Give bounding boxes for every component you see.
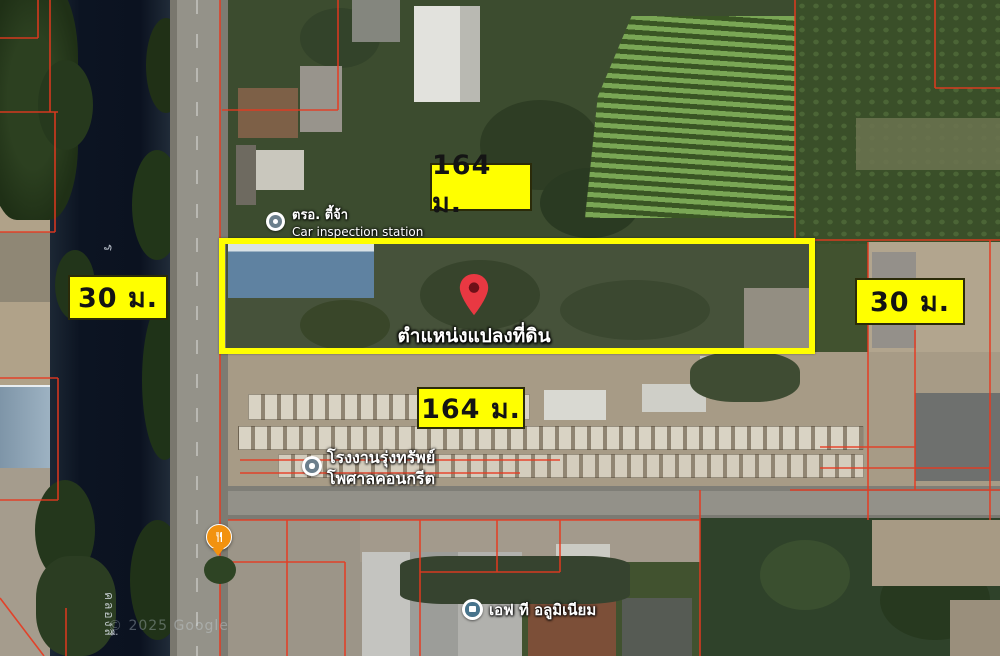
road-vertical-centerline: [196, 0, 198, 656]
bottom-right-tan-2: [950, 600, 1000, 656]
terrain-left-roof-2: [0, 232, 52, 302]
roof-dark-sliver: [236, 145, 256, 205]
roof-big-white: [414, 6, 480, 102]
yard-trees: [690, 352, 800, 402]
bottom-right-tree-blob-1: [760, 540, 850, 610]
bottom-left-ground: [228, 520, 378, 656]
satellite-map[interactable]: ตรอ. ตี้จ้า Car inspection station โรงงา…: [0, 0, 1000, 656]
factory-name-line2: โพศาลคอนกรีต: [327, 469, 435, 490]
dark-roof-bottom: [622, 598, 692, 656]
aluminium-label[interactable]: เอฟ ที อลูมิเนียม: [489, 601, 596, 621]
roof-gray-top: [352, 0, 400, 42]
pallet-row-2: [238, 426, 864, 450]
poi-dot-ring: [305, 459, 319, 473]
canal-trees-1: [38, 60, 93, 150]
dimension-label-left: 30 ม.: [68, 275, 168, 320]
aluminium-poi-icon[interactable]: [462, 599, 483, 620]
pin-caption: ตำแหน่งแปลงที่ดิน: [354, 321, 594, 351]
poi-dot-ring: [269, 215, 282, 228]
roof-gray-tall: [300, 66, 342, 132]
pin-hole: [469, 282, 480, 293]
factory-label[interactable]: โรงงานรุ่งทรัพย์ โพศาลคอนกรีต: [327, 448, 435, 490]
restaurant-pin[interactable]: [206, 524, 232, 550]
right-dark-shed: [915, 393, 1000, 481]
dimension-label-bottom: 164 ม.: [417, 387, 525, 429]
roof-rust: [238, 88, 298, 138]
dimension-label-top: 164 ม.: [430, 163, 532, 211]
location-pin-icon[interactable]: [453, 272, 495, 318]
restaurant-bush: [204, 556, 236, 584]
briefcase-icon: [465, 602, 479, 616]
car-inspection-poi-icon[interactable]: [266, 212, 285, 231]
pin-body: [460, 274, 488, 315]
briefcase-glyph: [469, 606, 476, 612]
roof-white-small: [252, 150, 304, 190]
canal-label-fragment: ร: [97, 244, 118, 253]
factory-poi-icon[interactable]: [302, 456, 322, 476]
car-inspection-label[interactable]: ตรอ. ตี้จ้า Car inspection station: [292, 208, 423, 240]
utensils-icon: [213, 531, 225, 543]
yard-white-roof-1: [544, 390, 606, 420]
poi-dot-core: [273, 219, 278, 224]
dimension-label-right: 30 ม.: [855, 278, 965, 325]
factory-name-line1: โรงงานรุ่งทรัพย์: [327, 448, 435, 469]
aluminium-name: เอฟ ที อลูมิเนียม: [489, 601, 596, 619]
car-inspection-name-th: ตรอ. ตี้จ้า: [292, 208, 423, 225]
terrain-left-blue-building: [0, 385, 50, 469]
restaurant-pin-tail: [212, 548, 224, 556]
orchard-tan-row: [856, 118, 1000, 170]
road-horizontal: [228, 486, 1000, 520]
google-attribution: © 2025 Google: [108, 618, 229, 634]
bottom-right-tan: [872, 520, 1000, 586]
poi-dot-core: [309, 463, 314, 468]
bottom-center-trees: [400, 556, 630, 604]
